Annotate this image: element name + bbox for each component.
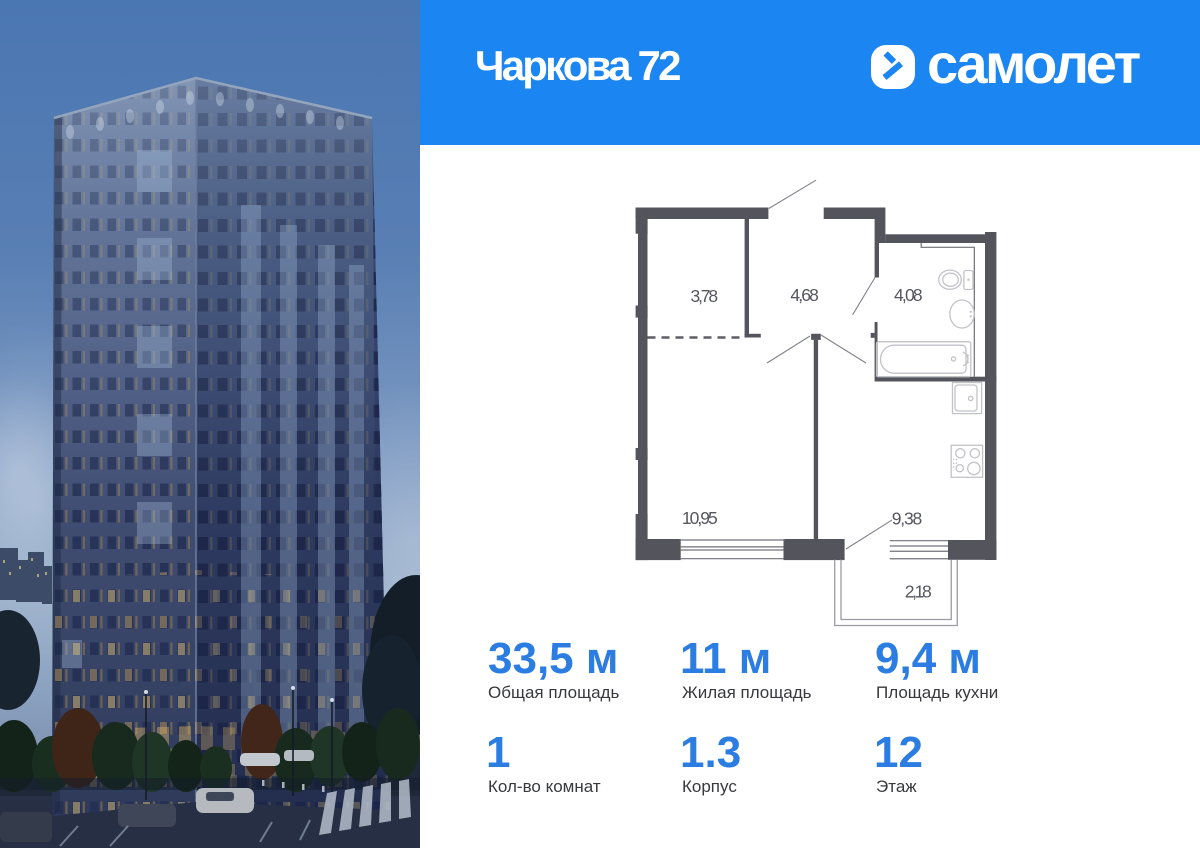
svg-text:4,68: 4,68 <box>790 285 819 305</box>
svg-text:10,95: 10,95 <box>682 508 718 528</box>
svg-text:9,38: 9,38 <box>892 509 922 529</box>
svg-text:2,18: 2,18 <box>905 582 932 602</box>
svg-text:3,78: 3,78 <box>691 286 719 306</box>
svg-text:4,08: 4,08 <box>894 285 923 305</box>
